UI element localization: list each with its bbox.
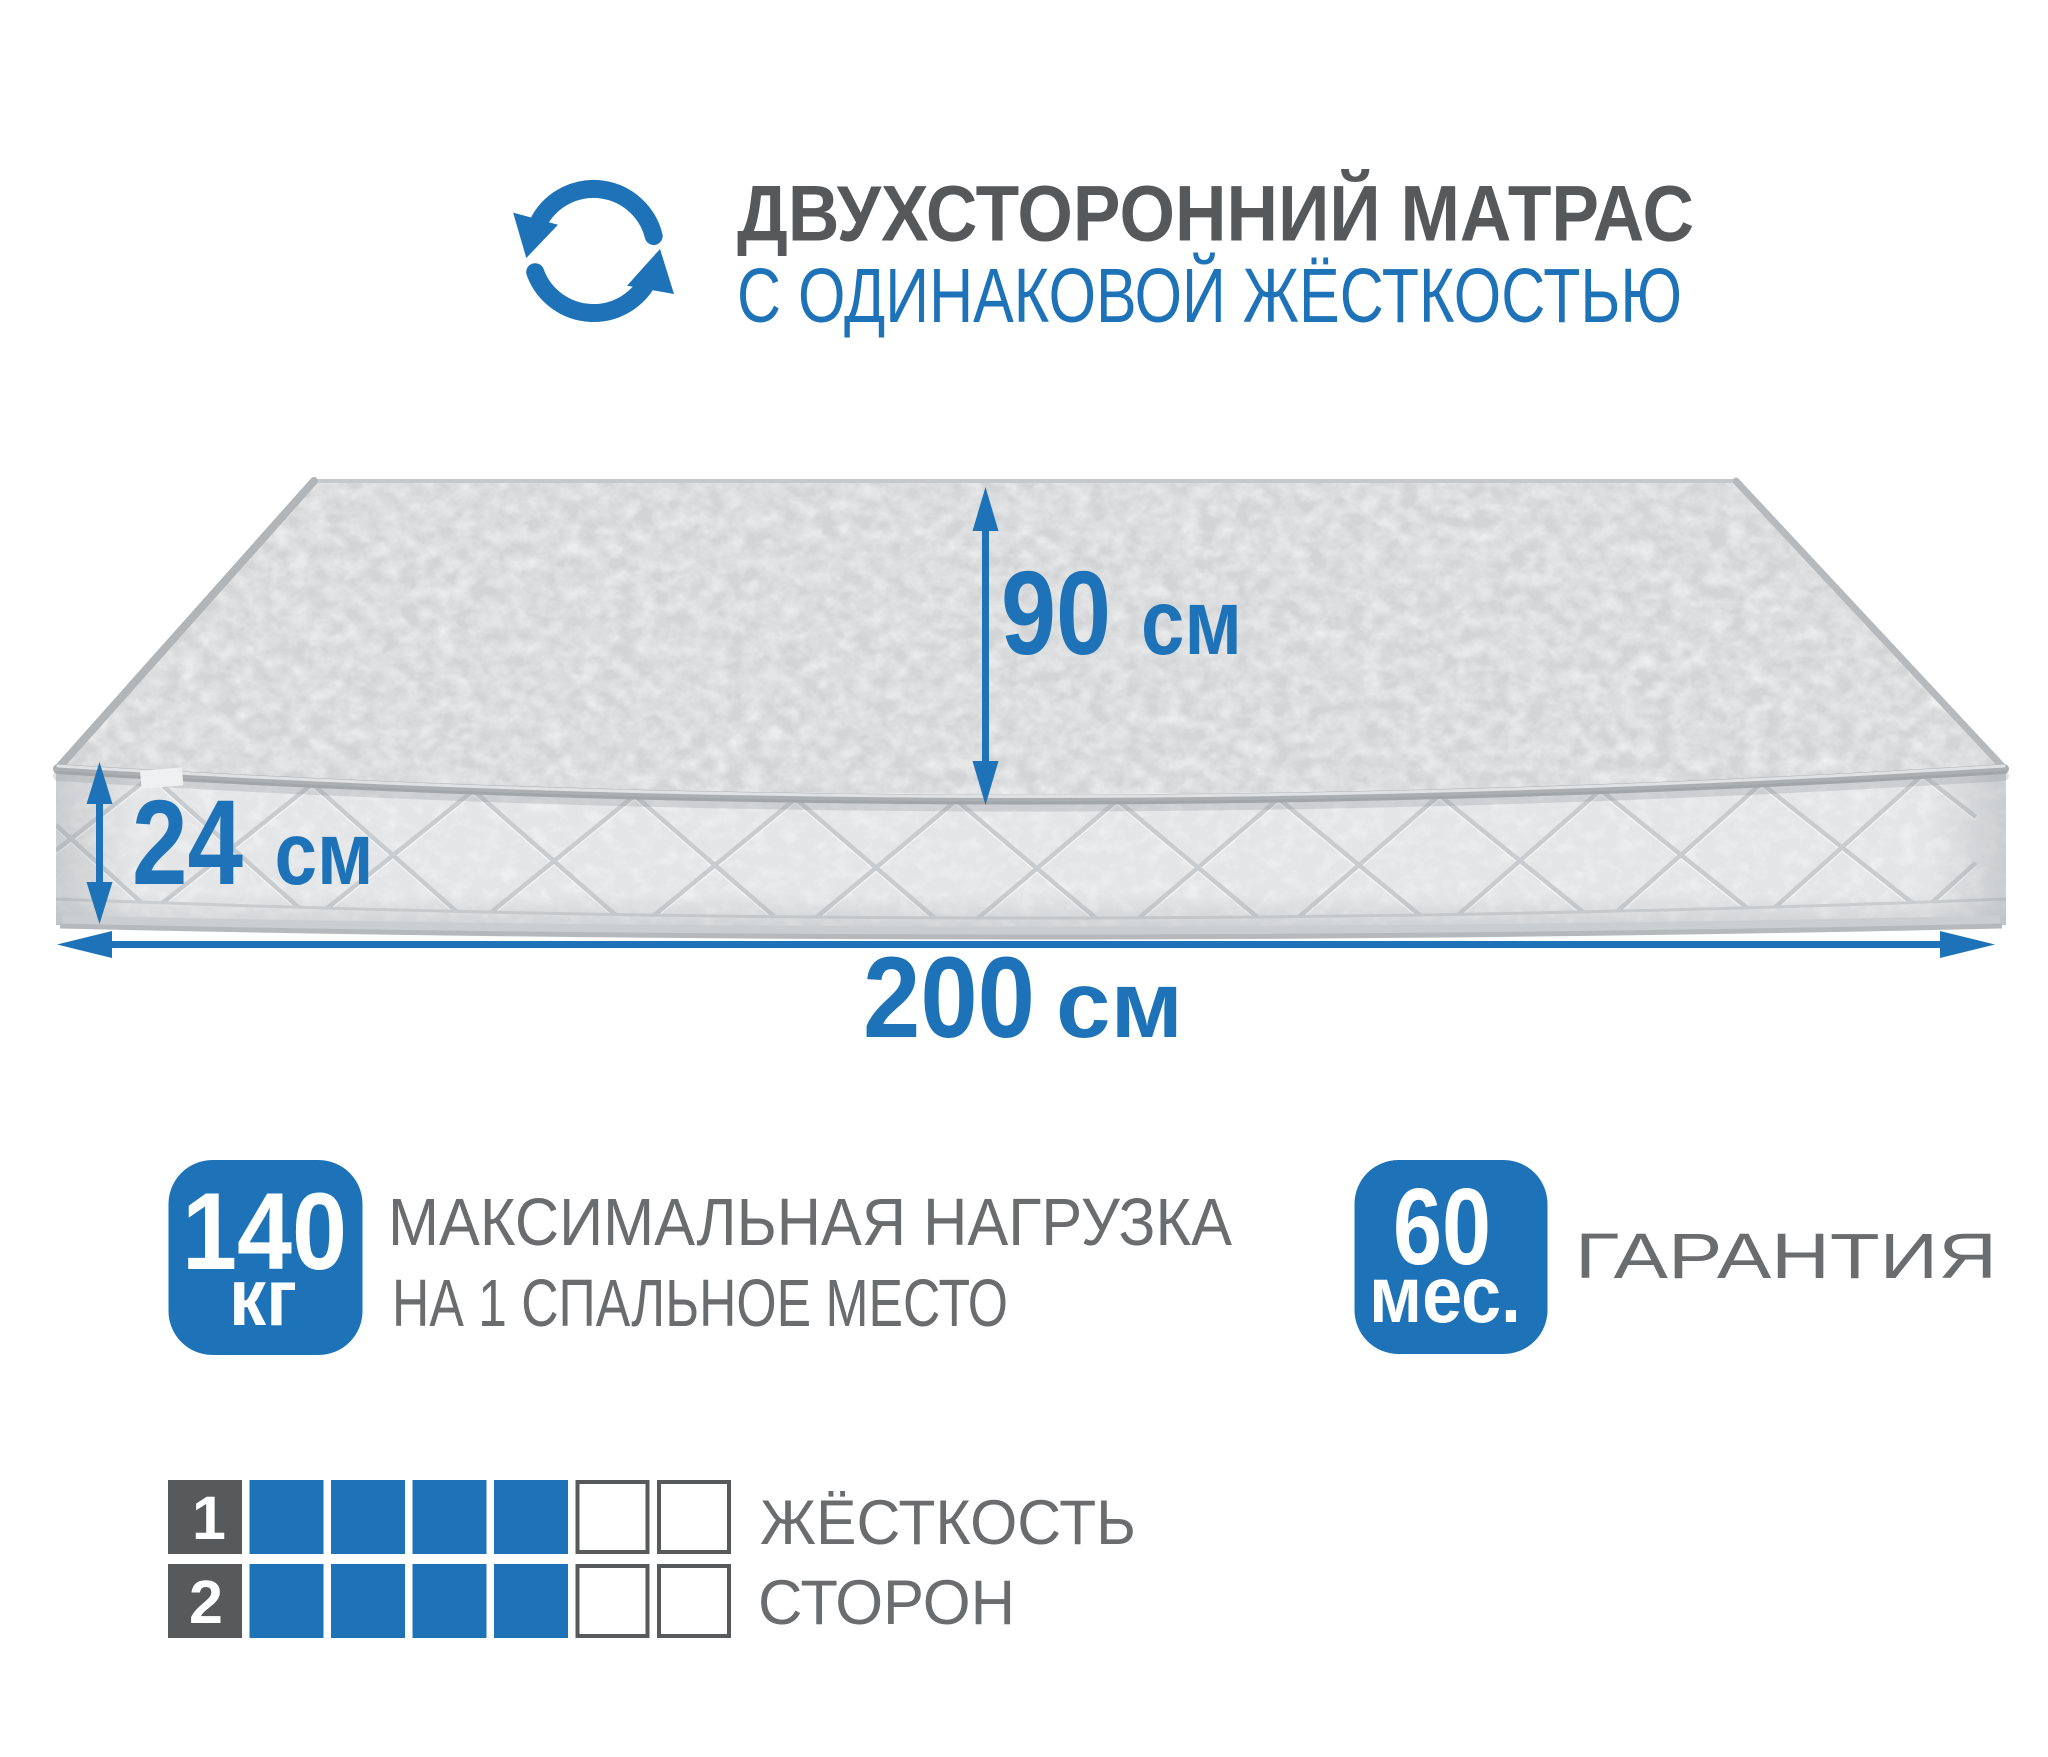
svg-text:СТОРОН: СТОРОН (758, 1568, 1015, 1638)
svg-text:90: 90 (1001, 547, 1111, 670)
svg-text:ГАРАНТИЯ: ГАРАНТИЯ (1575, 1220, 1997, 1292)
svg-text:см: см (1056, 952, 1183, 1055)
svg-text:см: см (275, 803, 374, 900)
svg-text:МАКСИМАЛЬНАЯ НАГРУЗКА: МАКСИМАЛЬНАЯ НАГРУЗКА (388, 1185, 1232, 1260)
svg-text:С ОДИНАКОВОЙ ЖЁСТКОСТЬЮ: С ОДИНАКОВОЙ ЖЁСТКОСТЬЮ (737, 253, 1682, 339)
svg-text:кг: кг (229, 1253, 297, 1343)
svg-text:ЖЁСТКОСТЬ: ЖЁСТКОСТЬ (760, 1488, 1136, 1558)
svg-text:2: 2 (189, 1568, 223, 1636)
svg-text:1: 1 (192, 1484, 226, 1552)
svg-text:НА 1 СПАЛЬНОЕ МЕСТО: НА 1 СПАЛЬНОЕ МЕСТО (392, 1266, 1008, 1341)
svg-text:24: 24 (132, 775, 243, 900)
svg-text:мес.: мес. (1369, 1250, 1521, 1339)
svg-text:см: см (1141, 570, 1242, 670)
svg-text:200: 200 (863, 934, 1035, 1055)
